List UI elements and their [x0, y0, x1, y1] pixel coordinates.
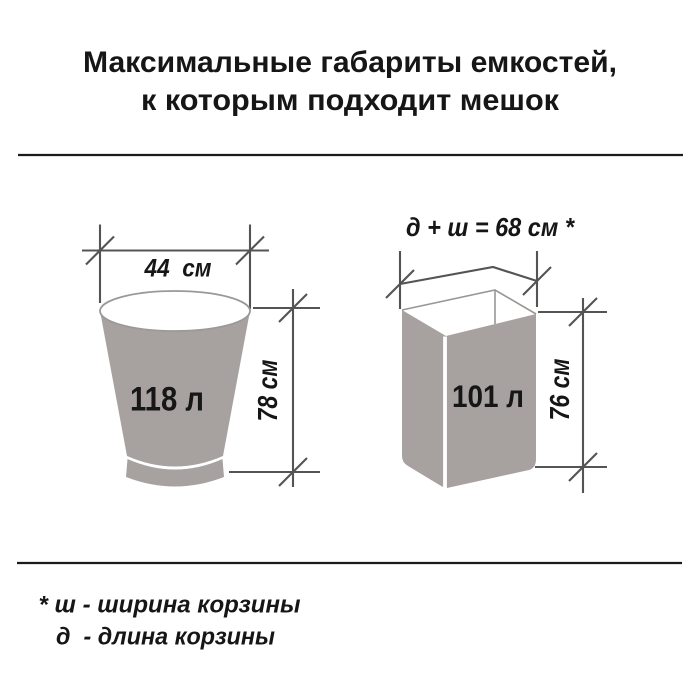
svg-text:101 л: 101 л [452, 378, 524, 414]
svg-text:118 л: 118 л [130, 381, 204, 419]
svg-text:76 см: 76 см [544, 358, 575, 420]
svg-text:* ш - ширина корзины: * ш - ширина корзины [39, 592, 302, 619]
svg-text:д - длина корзины: д - длина корзины [56, 624, 275, 651]
svg-text:д + ш = 68 см *: д + ш = 68 см * [406, 212, 576, 242]
svg-text:44 см: 44 см [144, 255, 212, 283]
svg-text:к которым подходит мешок: к которым подходит мешок [141, 84, 560, 117]
svg-text:Максимальные габариты емкостей: Максимальные габариты емкостей, [83, 46, 617, 79]
svg-text:78 см: 78 см [252, 359, 283, 421]
